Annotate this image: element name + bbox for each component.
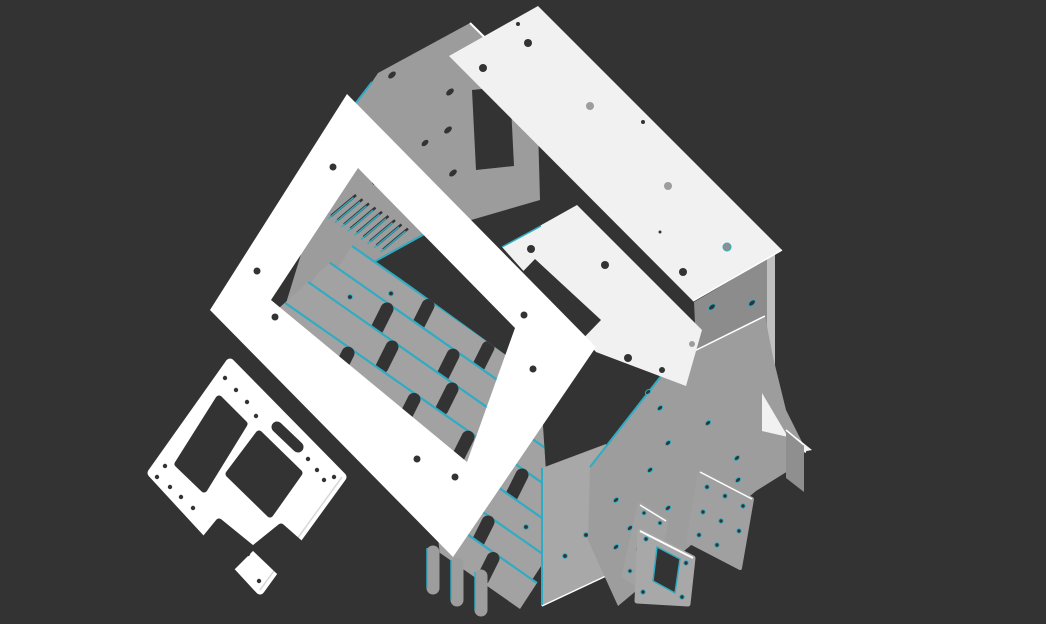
cad-app-window [0, 0, 1046, 624]
cad-viewport[interactable] [0, 0, 1046, 624]
